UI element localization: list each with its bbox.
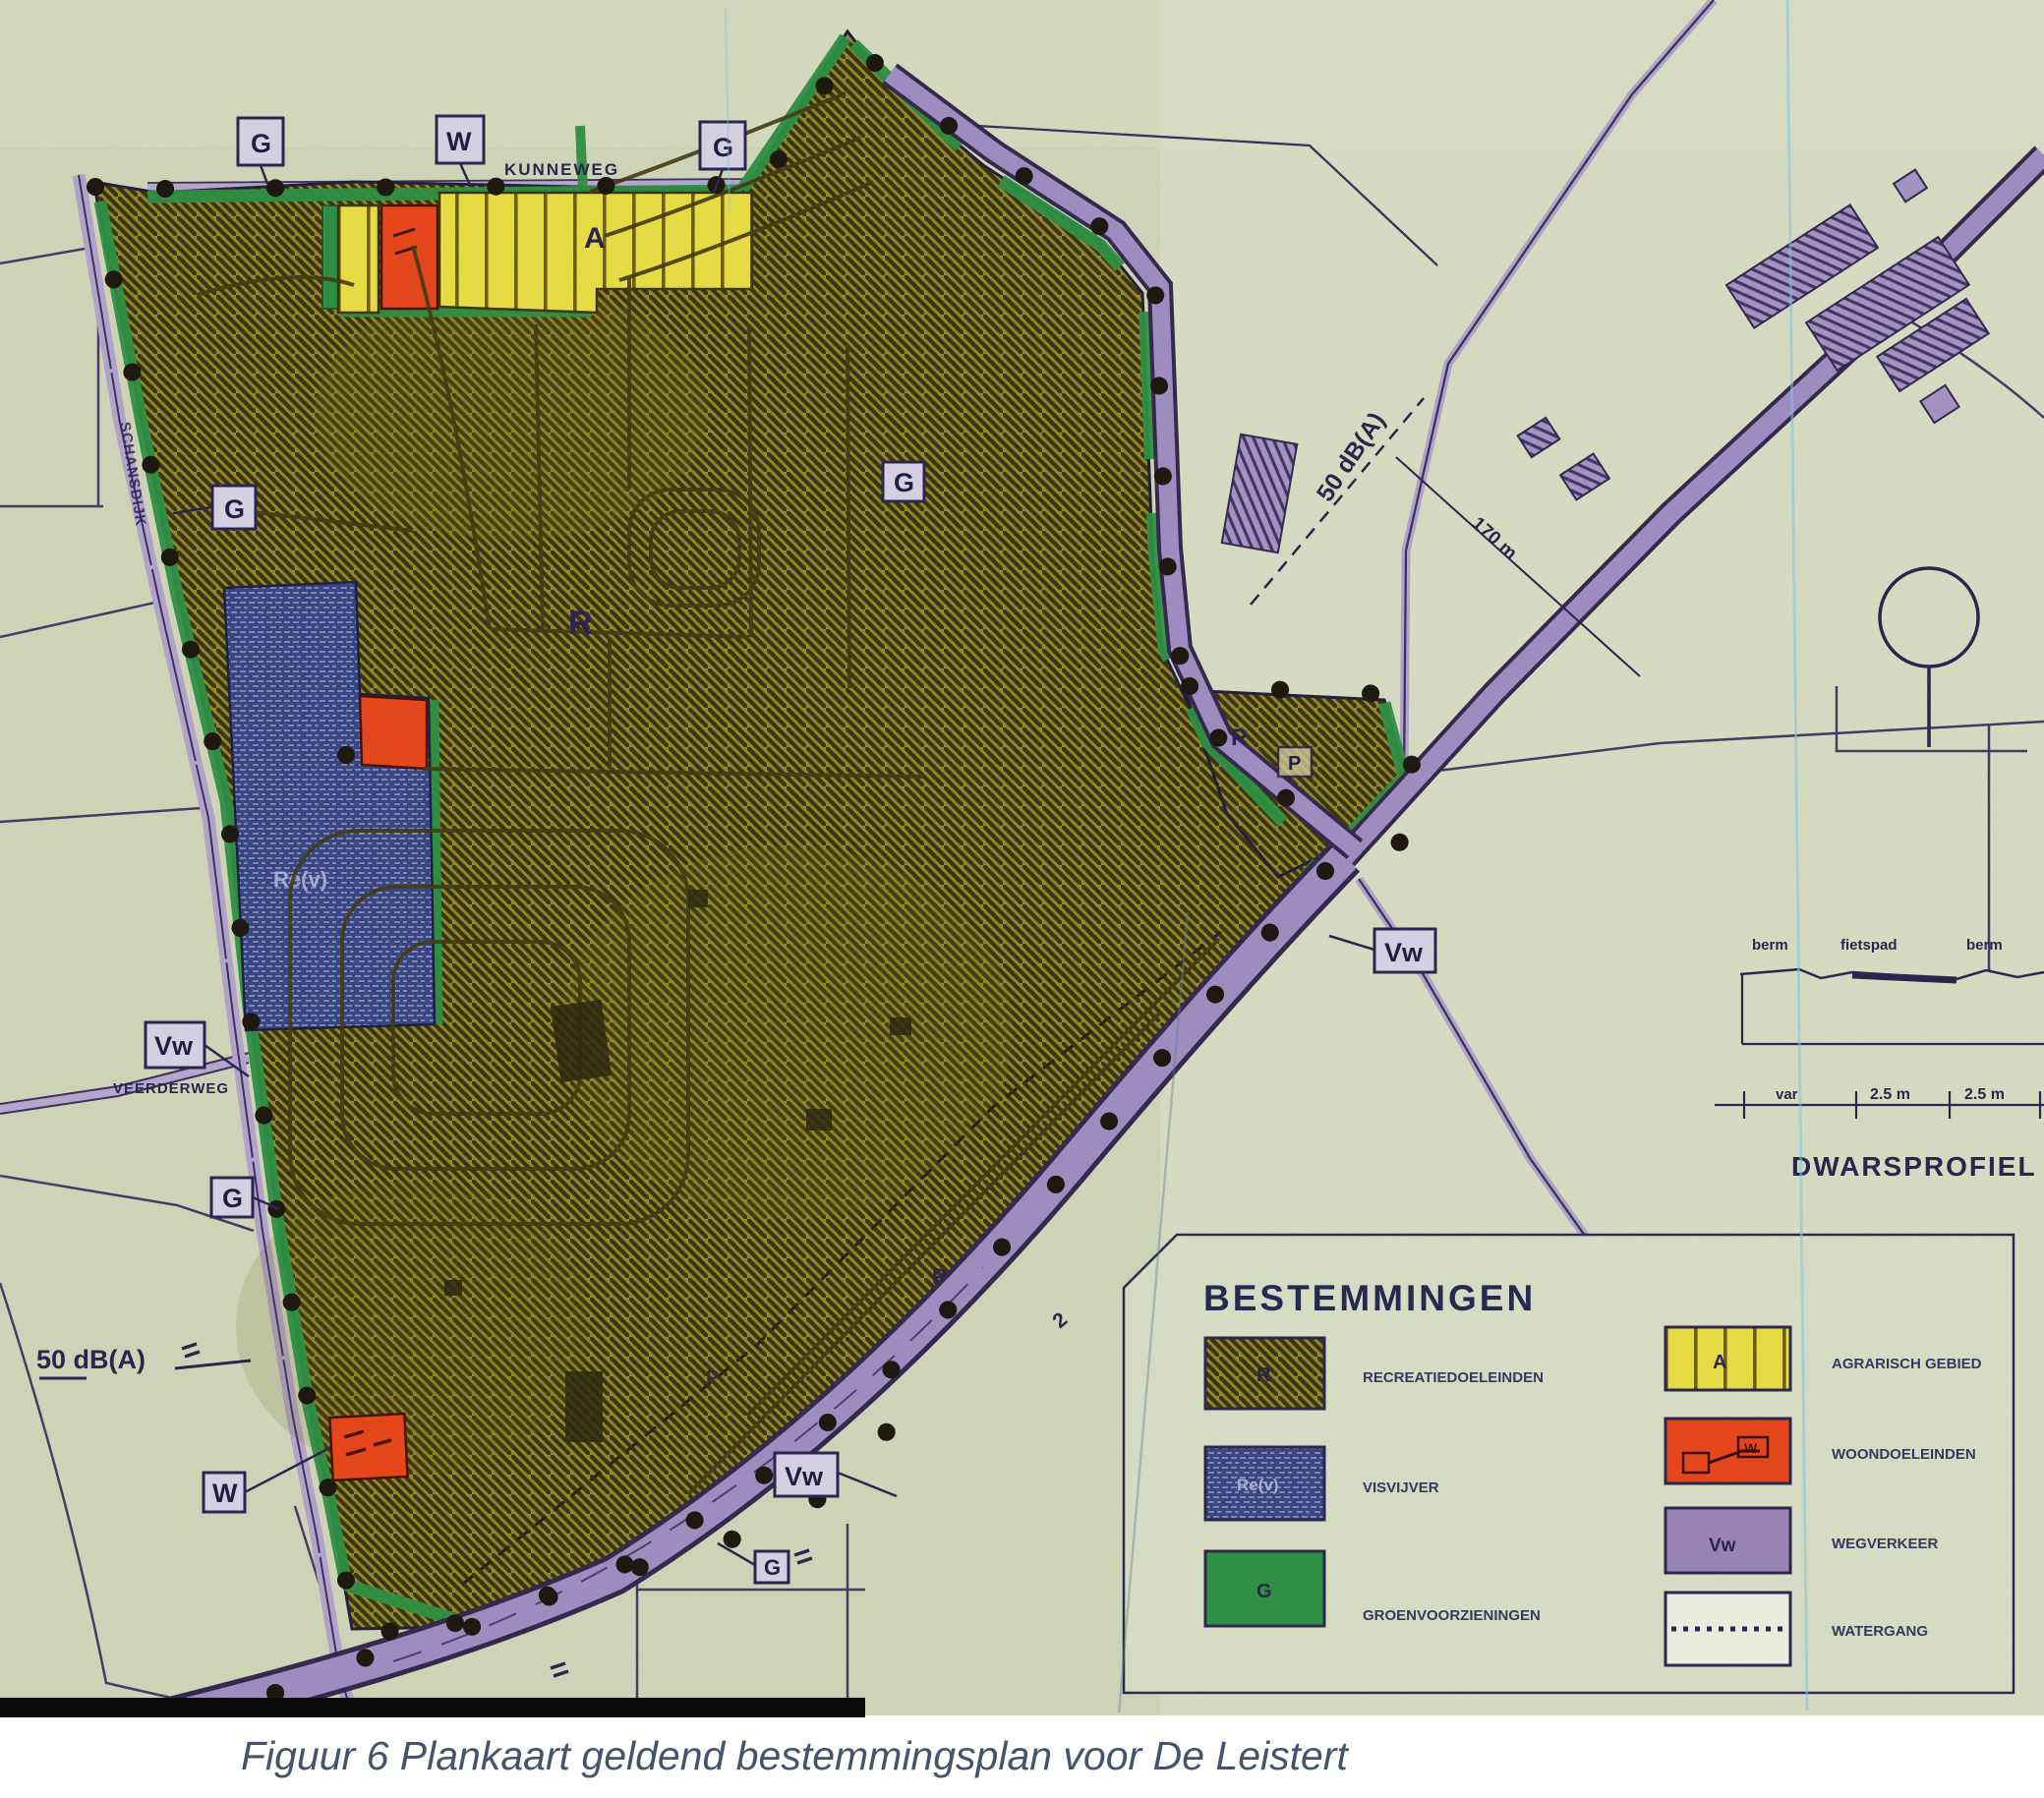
- scanned-zoning-plan-figure: A Re(v): [0, 0, 2044, 1798]
- paper-noise: [0, 0, 2044, 1715]
- figure-caption: Figuur 6 Plankaart geldend bestemmingspl…: [241, 1733, 1349, 1778]
- zoning-map-canvas: A Re(v): [0, 0, 2044, 1798]
